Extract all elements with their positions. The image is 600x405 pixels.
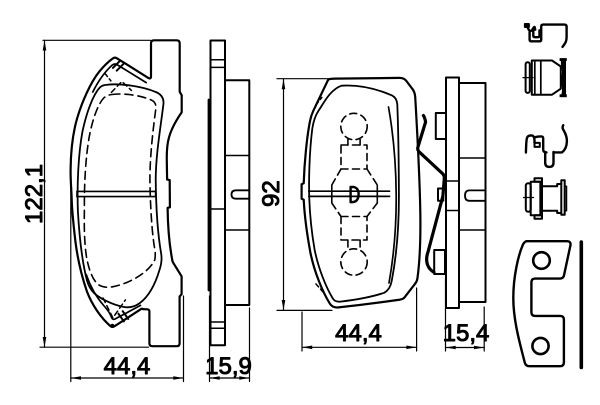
svg-text:15,4: 15,4 — [443, 320, 490, 347]
svg-text:44,4: 44,4 — [104, 353, 151, 380]
svg-text:44,4: 44,4 — [335, 320, 382, 347]
svg-text:92: 92 — [258, 180, 285, 207]
svg-text:15,9: 15,9 — [205, 353, 252, 380]
svg-text:122,1: 122,1 — [21, 164, 48, 224]
